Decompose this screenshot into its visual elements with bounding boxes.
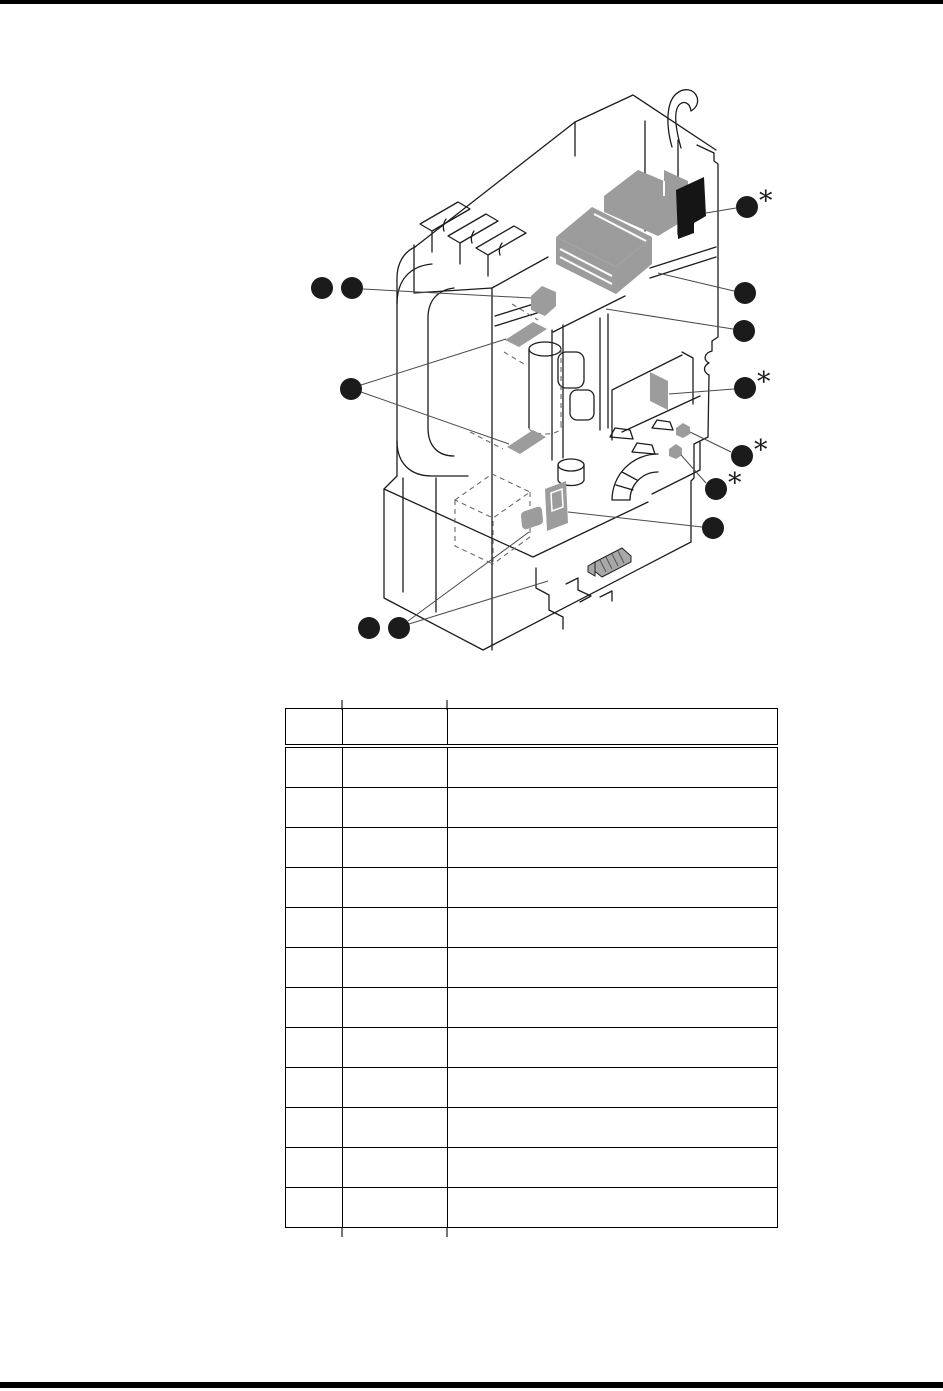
table-cell xyxy=(343,746,448,788)
table-row xyxy=(286,746,778,788)
callout-5 xyxy=(733,320,755,342)
top-fins xyxy=(420,202,526,276)
highlighted-part-hex-small-2 xyxy=(669,444,682,459)
table-cell xyxy=(343,1148,448,1188)
parts-table xyxy=(285,708,778,1228)
table-cell xyxy=(448,1028,778,1068)
table-cell xyxy=(448,1068,778,1108)
table-cell xyxy=(448,1148,778,1188)
table-cell xyxy=(343,908,448,948)
highlighted-part-rounded-block xyxy=(521,507,543,529)
table-cell xyxy=(343,1068,448,1108)
table-cell xyxy=(448,988,778,1028)
hook-handle xyxy=(668,90,698,148)
leader-line xyxy=(606,309,733,329)
highlighted-part-hex-small-1 xyxy=(676,423,690,438)
table-cell xyxy=(448,828,778,868)
table-cell xyxy=(343,988,448,1028)
leader-line xyxy=(669,389,734,394)
table-row xyxy=(286,1068,778,1108)
table-cell xyxy=(286,988,343,1028)
leader-line xyxy=(706,208,736,213)
parts-table-header-2 xyxy=(448,709,778,747)
parts-table-header-0 xyxy=(286,709,343,747)
callout-9-asterisk: * xyxy=(728,468,742,499)
hidden-dashed-lines xyxy=(455,304,561,564)
table-row xyxy=(286,1108,778,1148)
table-cell xyxy=(286,746,343,788)
table-cell xyxy=(343,828,448,868)
table-row xyxy=(286,988,778,1028)
table-cell xyxy=(343,1028,448,1068)
highlighted-part-strip-upper xyxy=(505,322,547,347)
highlighted-part-connector xyxy=(588,548,631,577)
leader-line xyxy=(361,339,506,385)
leader-line xyxy=(658,273,734,291)
callout-3 xyxy=(341,277,363,299)
table-row xyxy=(286,828,778,868)
leader-line xyxy=(361,392,509,444)
table-cell xyxy=(286,1108,343,1148)
table-cell xyxy=(286,1068,343,1108)
leader-line xyxy=(409,581,548,624)
table-row xyxy=(286,1028,778,1068)
callout-2 xyxy=(311,277,333,299)
callout-11 xyxy=(358,617,380,639)
callout-8-asterisk: * xyxy=(754,435,768,466)
leader-line xyxy=(408,532,529,621)
callout-9 xyxy=(705,478,727,500)
table-cell xyxy=(343,788,448,828)
manual-page: **** xyxy=(0,0,943,1391)
table-cell xyxy=(448,746,778,788)
callout-1 xyxy=(736,196,758,218)
table-cell xyxy=(448,948,778,988)
leader-line xyxy=(568,512,702,527)
parts-table-header-1 xyxy=(343,709,448,747)
table-cell xyxy=(343,1188,448,1228)
table-cell xyxy=(343,868,448,908)
table-row xyxy=(286,868,778,908)
table-cell xyxy=(286,908,343,948)
callout-1-asterisk: * xyxy=(759,186,773,217)
leader-line xyxy=(690,432,731,452)
table-row xyxy=(286,788,778,828)
table-cell xyxy=(286,828,343,868)
table-cell xyxy=(448,868,778,908)
callout-4 xyxy=(734,282,756,304)
callout-leader-lines xyxy=(361,208,736,624)
table-cell xyxy=(286,788,343,828)
parts-table-header-row xyxy=(286,709,778,747)
table-cell xyxy=(448,788,778,828)
table-cell xyxy=(286,868,343,908)
callout-6-asterisk: * xyxy=(757,367,771,398)
table-cell xyxy=(343,948,448,988)
highlighted-part-hex-cap xyxy=(531,286,556,316)
callout-8 xyxy=(731,445,753,467)
table-cell xyxy=(286,948,343,988)
highlighted-parts xyxy=(505,170,690,531)
table-cell xyxy=(343,1108,448,1148)
callout-markers: **** xyxy=(311,186,773,639)
table-cell xyxy=(286,1188,343,1228)
table-row xyxy=(286,1188,778,1228)
table-row xyxy=(286,948,778,988)
callout-12 xyxy=(388,617,410,639)
callout-7 xyxy=(340,378,362,400)
callout-10 xyxy=(702,517,724,539)
table-cell xyxy=(286,1028,343,1068)
table-cell xyxy=(448,908,778,948)
table-cell xyxy=(448,1188,778,1228)
highlighted-part-mid-panel xyxy=(545,481,568,531)
table-row xyxy=(286,908,778,948)
table-cell xyxy=(286,1148,343,1188)
table-row xyxy=(286,1148,778,1188)
callout-6 xyxy=(734,377,756,399)
table-cell xyxy=(448,1108,778,1148)
highlighted-part-side-slab xyxy=(650,372,668,410)
